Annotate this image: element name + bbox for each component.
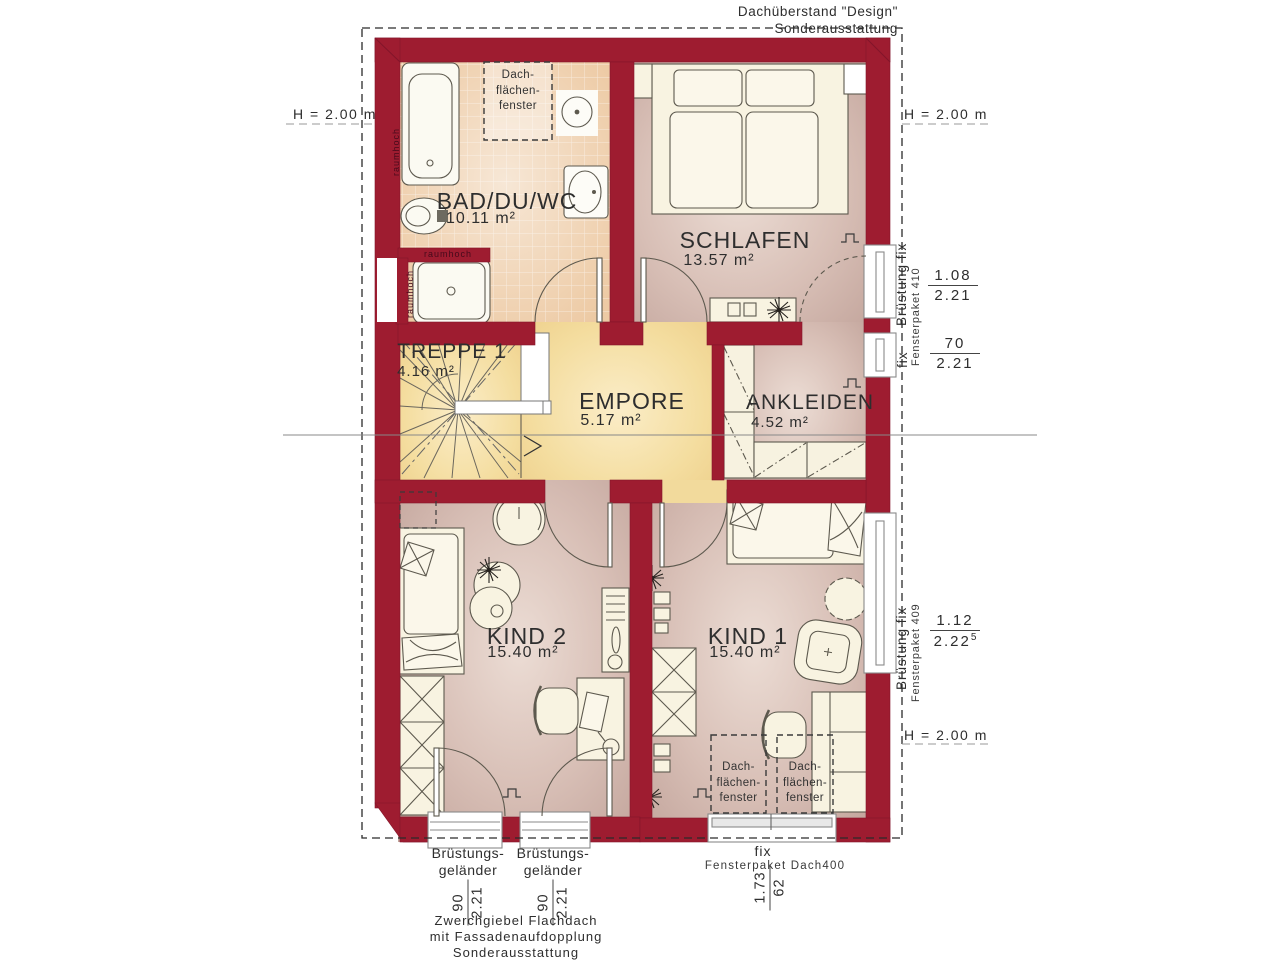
room-label-schlafen: SCHLAFEN — [680, 227, 811, 254]
room-area-kind1: 15.40 m² — [709, 644, 780, 662]
roof-window-label-kind1b: Dach- flächen- fenster — [777, 760, 833, 807]
balcony-rail-label-1: Brüstungs- geländer — [432, 845, 505, 878]
bed-kind2 — [398, 528, 464, 674]
wall-mid-b — [707, 322, 802, 345]
room-label-ankleiden: ANKLEIDEN — [746, 391, 874, 415]
wall-label-raumhoch-3: raumhoch — [424, 249, 472, 259]
wall-right-lower — [866, 672, 890, 842]
floor-plan-drawing — [0, 0, 1280, 960]
window-label-fix-410: fix — [895, 352, 910, 369]
dim-roof-window: 1.73 62 — [753, 865, 788, 911]
wardrobe-ankleiden-bottom — [754, 442, 866, 478]
note-line-2: Sonderausstattung — [738, 20, 898, 37]
window-label-bruestung-409: Brüstung fix — [894, 607, 909, 690]
height-mark-right-bottom: H = 2.00 m — [904, 727, 988, 743]
footer-note: Zwerchgiebel Flachdach mit Fassadenaufdo… — [430, 913, 603, 960]
floor-plan-canvas: Dachüberstand "Design" Sonderausstattung… — [0, 0, 1280, 960]
window-balcony-door-2 — [520, 812, 590, 848]
shelf-kind2 — [602, 588, 629, 672]
shower — [413, 258, 490, 324]
roof-window-label-kind1a: Dach- flächen- fenster — [711, 760, 766, 807]
wall-top — [375, 38, 890, 62]
door-leaf-bad — [597, 258, 602, 322]
dim-window-410-upper: 1.08 2.21 — [928, 267, 978, 304]
wall-bad-schlafen — [610, 62, 634, 322]
door-leaf-kind1 — [660, 503, 664, 567]
wall-kind1-kind2 — [630, 503, 652, 818]
dim-window-410-lower: 70 2.21 — [930, 335, 980, 372]
door-leaf-balcony-1 — [434, 748, 439, 816]
room-area-empore: 5.17 m² — [580, 412, 641, 430]
room-area-bad: 10.11 m² — [446, 210, 516, 228]
wall-mid-pier — [600, 322, 643, 345]
roof-overhang-note: Dachüberstand "Design" Sonderausstattung — [738, 3, 898, 37]
wall-window-pier — [864, 318, 890, 333]
room-area-treppe: 4.16 m² — [397, 363, 455, 380]
room-area-ankleiden: 4.52 m² — [751, 414, 809, 431]
door-leaf-schlafen — [641, 258, 646, 322]
height-mark-right-top: H = 2.00 m — [904, 106, 988, 122]
door-leaf-balcony-2 — [607, 748, 612, 816]
window-schlafen-lower — [864, 333, 896, 377]
dim-window-409: 1.12 2.225 — [930, 612, 980, 650]
armchair-kind1 — [792, 617, 865, 686]
room-area-kind2: 15.40 m² — [487, 644, 558, 662]
wall-right-upper — [866, 38, 890, 247]
window-label-paket-410: Fensterpaket 410 — [910, 268, 922, 366]
double-bed — [652, 64, 848, 214]
room-area-schlafen: 13.57 m² — [683, 252, 754, 270]
window-label-paket-409: Fensterpaket 409 — [910, 604, 922, 702]
sink-round — [556, 90, 598, 136]
bathtub — [402, 63, 459, 185]
wall-niche — [844, 64, 868, 94]
note-line-1: Dachüberstand "Design" — [738, 3, 898, 20]
room-label-empore: EMPORE — [579, 388, 685, 415]
round-table-kind1 — [825, 578, 867, 620]
floor-door-opening — [662, 480, 727, 503]
wall-empore-ankleiden — [712, 345, 724, 480]
room-label-treppe: TREPPE 1 — [397, 340, 507, 364]
roof-window-label-bad: Dach- flächen- fenster — [484, 68, 552, 115]
window-label-bruestung-410: Brüstung fix — [894, 243, 909, 326]
balcony-rail-label-2: Brüstungs- geländer — [517, 845, 590, 878]
desk-chair-kind2 — [535, 686, 579, 735]
wall-lower-pier — [610, 480, 662, 503]
height-mark-left: H = 2.00 m — [293, 106, 377, 122]
wall-label-raumhoch-1: raumhoch — [391, 128, 401, 176]
wall-lower-b — [727, 480, 866, 503]
wall-niche-shower — [377, 258, 397, 322]
roof-window-fix-label: fix — [755, 843, 772, 859]
desk-kind2 — [577, 678, 624, 760]
window-schlafen-upper — [864, 245, 896, 318]
wall-label-raumhoch-2: raumhoch — [405, 270, 415, 318]
window-kind1-right — [864, 513, 896, 673]
door-leaf-kind2 — [608, 503, 612, 567]
stair-handrail — [455, 401, 551, 414]
window-balcony-door-1 — [428, 812, 502, 848]
